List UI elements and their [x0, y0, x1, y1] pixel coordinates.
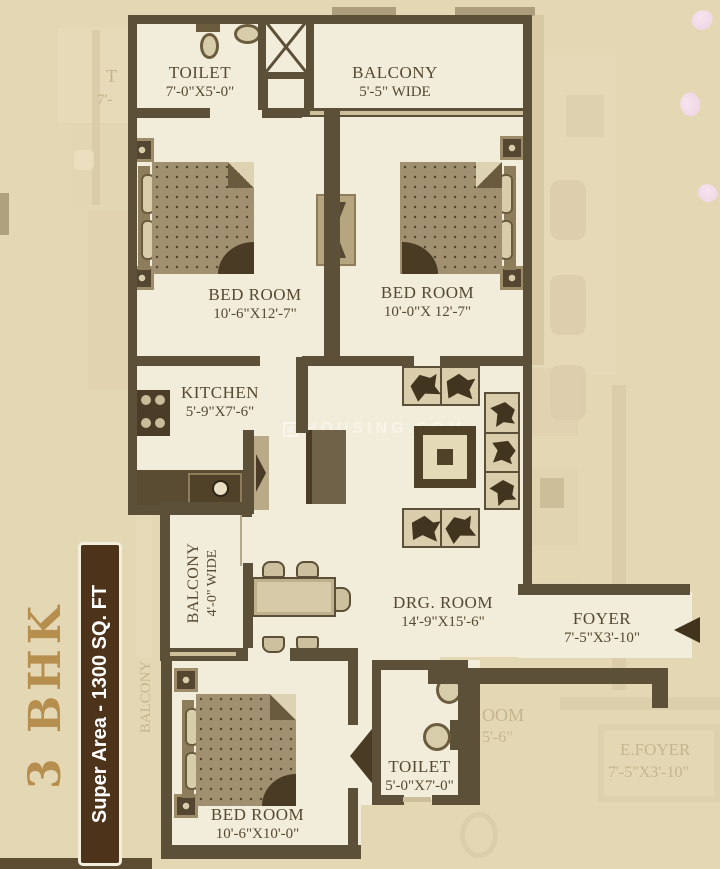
room-name: BED ROOM: [345, 282, 510, 303]
room-label-toilet-bottom: TOILET 5'-0"X7'-0": [352, 756, 487, 796]
wall: [160, 502, 170, 661]
room-label-drawing: DRG. ROOM 14'-9"X15'-6": [368, 592, 518, 632]
wall: [128, 356, 260, 366]
room-dims: 7'-5"X3'-10": [537, 629, 667, 648]
room-dims: 5'-9"X7'-6": [150, 403, 290, 422]
cushion-icon: [444, 372, 475, 402]
wall: [243, 430, 254, 514]
wall: [523, 15, 532, 367]
room-name: BED ROOM: [175, 804, 340, 825]
coffee-table-center: [437, 449, 453, 465]
adjacent-toilet-label-fragment: T: [106, 66, 117, 87]
entry-arrow-icon: [674, 617, 700, 643]
dining-table-icon: [252, 577, 336, 617]
petal-icon: [676, 90, 705, 120]
wall: [0, 858, 152, 869]
room-name: BALCONY: [315, 62, 475, 83]
bhk-label-text: 3 BHK: [20, 601, 71, 789]
bhk-label: 3 BHK: [22, 585, 68, 805]
bed-fold-icon: [476, 162, 502, 188]
wall: [128, 357, 137, 515]
room-name: BALCONY: [184, 543, 204, 624]
petal-icon: [689, 7, 715, 33]
cushion-icon: [491, 439, 517, 464]
adjacent-efoyer-dims: 7'-5"X3'-10": [608, 764, 689, 782]
room-dims: 10'-0"X 12'-7": [345, 303, 510, 322]
room-name: BED ROOM: [175, 284, 335, 305]
wall: [304, 79, 314, 110]
room-dims: 7'-0"X5'-0": [130, 83, 270, 102]
super-area-badge-text-wrap: Super Area - 1300 SQ. FT: [82, 546, 118, 862]
room-label-foyer: FOYER 7'-5"X3'-10": [537, 608, 667, 648]
cushion-icon: [443, 513, 476, 545]
adjacent-wall: [332, 7, 396, 15]
adjacent-cushion-icon: [540, 478, 564, 508]
wall: [296, 357, 308, 433]
chair-icon: [262, 636, 285, 653]
wall: [302, 356, 414, 366]
wall: [161, 661, 172, 845]
door-icon: [403, 797, 431, 802]
room-name: FOYER: [537, 608, 667, 629]
wall: [348, 655, 358, 725]
room-dims: 10'-6"X10'-0": [175, 825, 340, 844]
cushion-icon: [490, 401, 518, 428]
adjacent-wardrobe-icon: [550, 180, 586, 240]
adjacent-balcony-label-text: BALCONY: [138, 661, 155, 734]
room-label-kitchen: KITCHEN 5'-9"X7'-6": [150, 382, 290, 422]
wall: [128, 15, 532, 24]
chair-icon: [334, 587, 351, 612]
cushion-icon: [409, 514, 441, 544]
sofa-icon: [402, 366, 480, 406]
wall: [440, 356, 532, 366]
adjacent-foyer-outline: [598, 724, 720, 802]
room-name: TOILET: [130, 62, 270, 83]
adjacent-wall: [0, 193, 9, 235]
wall: [348, 788, 358, 845]
washbasin-icon: [234, 24, 261, 44]
room-dims: 14'-9"X15'-6": [368, 613, 518, 632]
adjacent-wall: [92, 30, 100, 205]
room-dims: 5'-5" WIDE: [315, 83, 475, 102]
adjacent-wall: [560, 697, 720, 710]
floor-plan-canvas: T 7'- OOM 5'-6" E.FOYER 7'-5"X3'-10" BAL…: [0, 0, 720, 869]
wall: [243, 563, 253, 648]
wc-icon: [200, 33, 219, 59]
wall: [262, 108, 302, 118]
adjacent-room-dims-fragment: 5'-6": [482, 729, 513, 747]
shaft-x-icon: [266, 22, 306, 72]
sink-bowl-icon: [212, 480, 229, 497]
room-label-bedroom-left: BED ROOM 10'-6"X12'-7": [175, 284, 335, 324]
adjacent-room-shape: [88, 210, 130, 390]
adjacent-efoyer-label: E.FOYER: [620, 740, 690, 760]
chair-icon: [296, 561, 319, 578]
kitchen-door-icon: [254, 436, 269, 510]
room-dims: 10'-6"X12'-7": [175, 305, 335, 324]
room-label-bedroom-right: BED ROOM 10'-0"X 12'-7": [345, 282, 510, 322]
nightstand-icon: [500, 136, 524, 160]
wall: [378, 660, 468, 670]
wall: [523, 357, 532, 593]
super-area-badge: Super Area - 1300 SQ. FT: [78, 542, 122, 866]
fridge-icon: [306, 430, 346, 504]
adjacent-room-label-fragment: OOM: [482, 705, 524, 726]
bed-fold-icon: [228, 162, 254, 188]
room-label-toilet-top: TOILET 7'-0"X5'-0": [130, 62, 270, 102]
room-name: DRG. ROOM: [368, 592, 518, 613]
nightstand-icon: [174, 668, 198, 692]
room-label-balcony-top: BALCONY 5'-5" WIDE: [315, 62, 475, 102]
coffee-table-icon: [414, 426, 476, 488]
room-dims: 5'-0"X7'-0": [352, 777, 487, 796]
adjacent-wall: [532, 15, 544, 365]
room-label-bedroom-bottom: BED ROOM 10'-6"X10'-0": [175, 804, 340, 844]
wall: [161, 845, 361, 859]
adjacent-sofa-icon: [532, 368, 578, 436]
super-area-badge-text: Super Area - 1300 SQ. FT: [89, 585, 112, 823]
cushion-icon: [488, 477, 518, 507]
wc-icon: [423, 723, 451, 751]
bed-fold-icon: [270, 694, 296, 720]
adjacent-wardrobe-icon: [550, 275, 586, 335]
petal-icon: [694, 180, 720, 206]
wall: [518, 584, 690, 595]
door-swing-icon: [240, 512, 242, 566]
sofa-icon: [402, 508, 480, 548]
kitchen-door-icon: [256, 454, 266, 492]
sofa-icon: [484, 392, 520, 510]
wall: [128, 108, 210, 118]
adjacent-toilet-dims-fragment: 7'-: [97, 92, 112, 109]
adjacent-circle-shape: [460, 812, 498, 858]
chair-icon: [262, 561, 285, 578]
wall: [652, 668, 668, 708]
room-label-balcony-middle: BALCONY 4'-0" WIDE: [181, 503, 225, 663]
adjacent-room-shape: [136, 508, 152, 658]
cushion-icon: [409, 371, 442, 402]
room-dims: 4'-0" WIDE: [204, 550, 222, 617]
wall: [242, 503, 252, 517]
adjacent-wardrobe-icon: [566, 95, 604, 137]
adjacent-flower-icon: [74, 150, 94, 170]
window-icon: [310, 111, 524, 115]
room-name: KITCHEN: [150, 382, 290, 403]
room-name: TOILET: [352, 756, 487, 777]
